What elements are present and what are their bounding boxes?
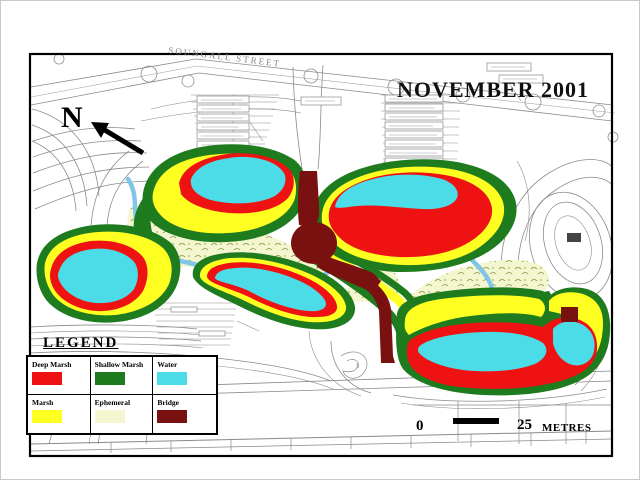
wetland-site-plan-page: NOVEMBER 2001 N SOUNGALL STREET LEGEND D…	[0, 0, 640, 480]
scale-unit-label: METRES	[542, 422, 591, 434]
legend-item-label: Water	[157, 360, 212, 369]
bridge-swatch	[157, 410, 187, 423]
cell-east	[313, 159, 517, 272]
deep-marsh-swatch	[32, 372, 62, 385]
legend-item-ephemeral: Ephemeral	[91, 395, 154, 433]
legend-item-deep-marsh: Deep Marsh	[28, 357, 91, 395]
scale-distance-label: 25	[517, 417, 532, 434]
cell-west	[36, 224, 180, 322]
north-arrow-icon	[91, 122, 143, 153]
scale-zero-label: 0	[416, 418, 424, 435]
cell-southeast	[396, 287, 610, 395]
scale-bar	[453, 418, 499, 424]
legend-item-label: Ephemeral	[95, 398, 149, 407]
legend-item-marsh: Marsh	[28, 395, 91, 433]
ephemeral-swatch	[95, 410, 125, 423]
legend-item-label: Marsh	[32, 398, 86, 407]
marsh-swatch	[32, 410, 62, 423]
legend-item-water: Water	[153, 357, 216, 395]
legend: Deep Marsh Shallow Marsh Water Marsh Eph…	[26, 355, 218, 435]
map-title: NOVEMBER 2001	[397, 77, 589, 103]
water-swatch	[157, 372, 187, 385]
north-label: N	[61, 101, 83, 135]
shallow-marsh-swatch	[95, 372, 125, 385]
legend-title: LEGEND	[43, 335, 118, 352]
legend-item-label: Bridge	[157, 398, 212, 407]
legend-item-bridge: Bridge	[153, 395, 216, 433]
legend-item-shallow-marsh: Shallow Marsh	[91, 357, 154, 395]
legend-item-label: Deep Marsh	[32, 360, 86, 369]
bridge-marker	[561, 307, 578, 322]
legend-item-label: Shallow Marsh	[95, 360, 149, 369]
